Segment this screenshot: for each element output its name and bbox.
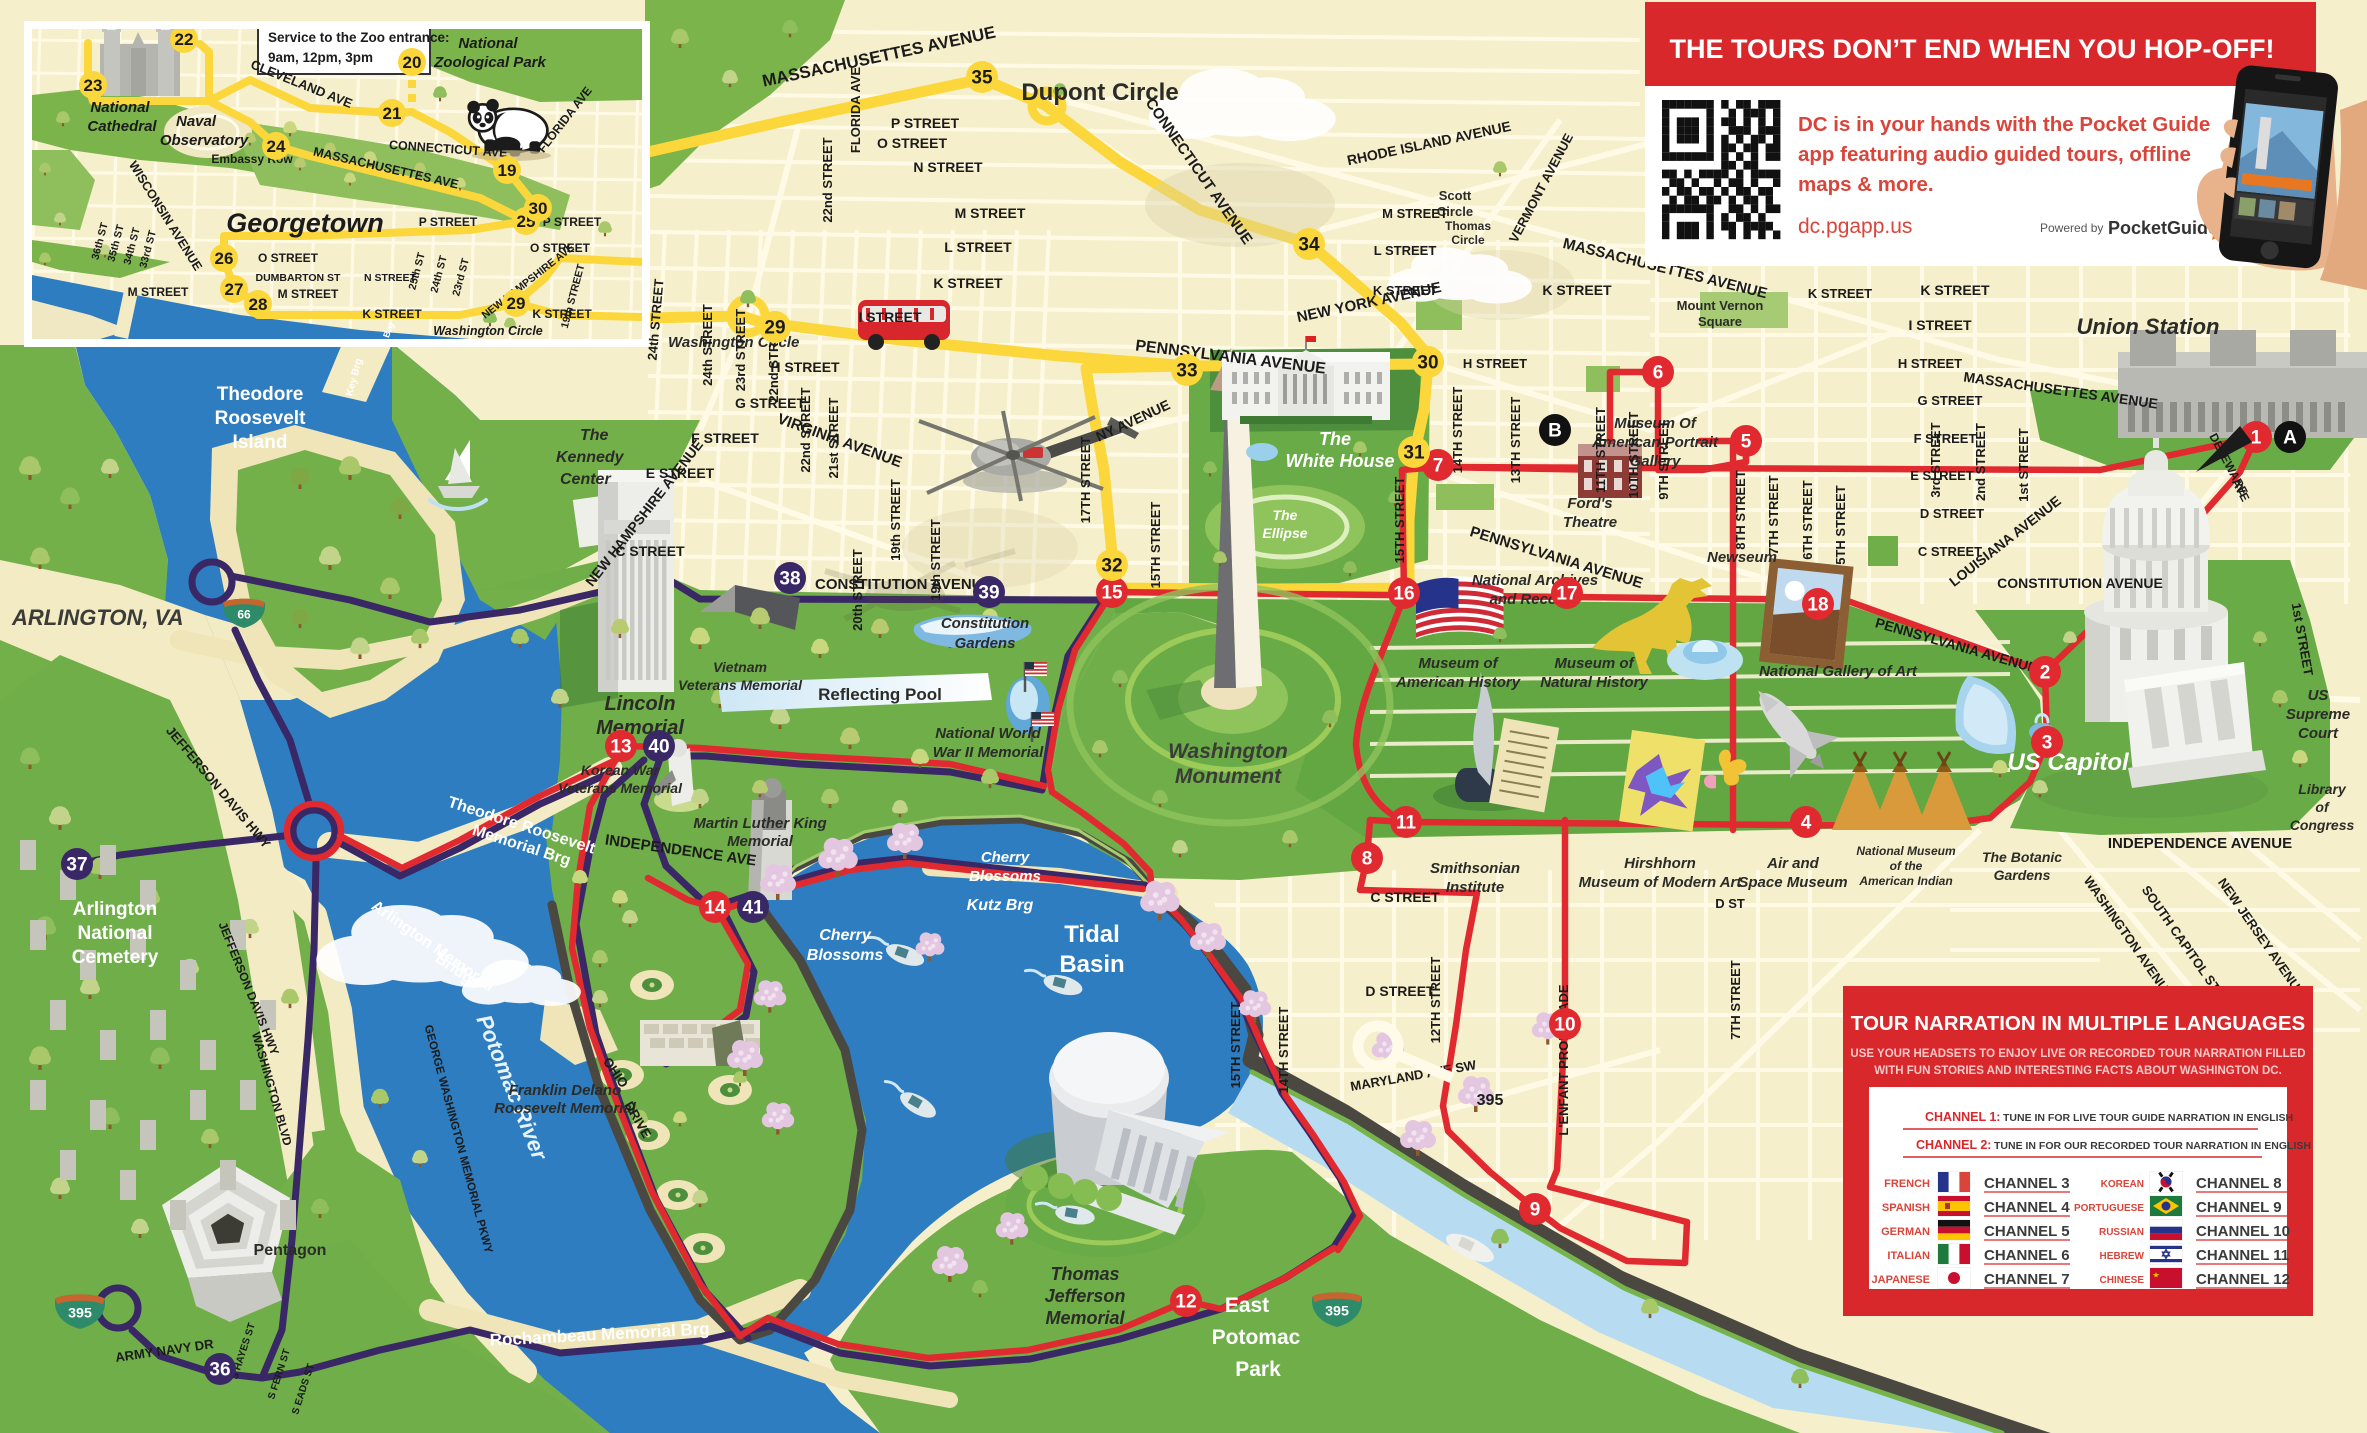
svg-text:CHINESE: CHINESE	[2100, 1275, 2145, 1286]
svg-text:26: 26	[215, 249, 234, 268]
svg-text:14: 14	[704, 898, 726, 919]
svg-text:Blossoms: Blossoms	[807, 947, 884, 964]
svg-text:Ford's: Ford's	[1567, 495, 1612, 512]
svg-text:Potomac: Potomac	[1212, 1326, 1301, 1349]
svg-text:L STREET: L STREET	[944, 239, 1012, 255]
svg-text:21st STREET: 21st STREET	[826, 397, 841, 478]
svg-text:Mount Vernon: Mount Vernon	[1677, 298, 1764, 313]
svg-text:34: 34	[1298, 235, 1320, 256]
svg-text:Court: Court	[2298, 725, 2339, 742]
svg-text:7: 7	[1433, 456, 1444, 477]
svg-text:East: East	[1225, 1294, 1269, 1317]
svg-text:Washington Circle: Washington Circle	[433, 324, 543, 338]
svg-text:29: 29	[507, 294, 526, 313]
svg-text:2nd STREET: 2nd STREET	[1973, 423, 1988, 501]
svg-text:Smithsonian: Smithsonian	[1430, 860, 1520, 877]
svg-text:F STREET: F STREET	[691, 430, 759, 446]
svg-text:Lincoln: Lincoln	[604, 693, 675, 715]
svg-text:Island: Island	[233, 432, 288, 453]
svg-text:30: 30	[1417, 353, 1438, 374]
svg-text:7TH STREET: 7TH STREET	[1728, 960, 1743, 1040]
svg-text:DC is in your hands with the P: DC is in your hands with the Pocket Guid…	[1798, 113, 2210, 136]
svg-text:CHANNEL 10: CHANNEL 10	[2196, 1223, 2290, 1240]
svg-text:National: National	[90, 99, 150, 116]
svg-text:36: 36	[209, 1360, 230, 1381]
svg-text:21: 21	[383, 104, 402, 123]
svg-text:20th STREET: 20th STREET	[850, 549, 865, 631]
svg-text:6: 6	[1653, 363, 1664, 384]
svg-text:15TH STREET: 15TH STREET	[1228, 1002, 1243, 1089]
svg-text:Thomas: Thomas	[1050, 1264, 1119, 1284]
svg-text:C STREET: C STREET	[615, 543, 685, 559]
svg-text:13: 13	[610, 737, 631, 758]
svg-text:CHANNEL 7: CHANNEL 7	[1984, 1271, 2070, 1288]
svg-text:40: 40	[648, 737, 669, 758]
svg-text:I STREET: I STREET	[1908, 317, 1971, 333]
svg-text:American History: American History	[1395, 674, 1521, 691]
svg-text:15: 15	[1101, 583, 1123, 604]
svg-text:18: 18	[1807, 595, 1828, 616]
svg-text:Memorial: Memorial	[1045, 1308, 1125, 1328]
svg-text:3: 3	[2042, 733, 2053, 754]
svg-text:Veterans Memorial: Veterans Memorial	[678, 677, 803, 693]
svg-text:10TH STREET: 10TH STREET	[1626, 412, 1641, 499]
svg-text:6TH STREET: 6TH STREET	[1800, 480, 1815, 560]
svg-text:19: 19	[498, 161, 517, 180]
svg-text:H STREET: H STREET	[1898, 356, 1962, 371]
svg-text:3rd STREET: 3rd STREET	[1928, 422, 1943, 497]
svg-text:Pentagon: Pentagon	[254, 1242, 327, 1259]
svg-text:Franklin Delano: Franklin Delano	[509, 1082, 622, 1099]
svg-text:Gardens: Gardens	[1994, 867, 2051, 883]
svg-text:CONSTITUTION AVENUE: CONSTITUTION AVENUE	[815, 576, 993, 593]
svg-text:L STREET: L STREET	[1374, 243, 1437, 258]
svg-text:TUNE IN FOR OUR RECORDED TOUR: TUNE IN FOR OUR RECORDED TOUR NARRATION …	[1994, 1140, 2311, 1152]
svg-text:17TH STREET: 17TH STREET	[1078, 437, 1093, 524]
svg-text:K STREET: K STREET	[1808, 286, 1872, 301]
svg-text:Monument: Monument	[1175, 765, 1282, 788]
svg-text:RUSSIAN: RUSSIAN	[2099, 1227, 2144, 1238]
svg-text:Washington: Washington	[1168, 740, 1288, 763]
svg-text:Museum of: Museum of	[1554, 655, 1635, 672]
svg-text:10: 10	[1554, 1015, 1575, 1036]
svg-text:Center: Center	[560, 471, 611, 488]
svg-text:Blossoms: Blossoms	[969, 868, 1041, 885]
svg-text:Observatory: Observatory	[160, 132, 249, 149]
svg-text:41: 41	[742, 898, 764, 919]
svg-text:20: 20	[403, 53, 422, 72]
svg-text:33: 33	[1176, 361, 1197, 382]
svg-text:National World: National World	[935, 725, 1041, 742]
svg-text:F STREET: F STREET	[1914, 431, 1977, 446]
svg-text:19th STREET: 19th STREET	[928, 519, 943, 601]
svg-text:Jefferson: Jefferson	[1045, 1286, 1126, 1306]
svg-text:P STREET: P STREET	[891, 115, 960, 131]
svg-text:O STREET: O STREET	[877, 135, 947, 151]
svg-text:E STREET: E STREET	[646, 465, 715, 481]
svg-text:29: 29	[764, 318, 785, 339]
svg-text:National Gallery of Art: National Gallery of Art	[1759, 663, 1918, 680]
svg-text:16: 16	[1393, 584, 1414, 605]
svg-text:National Museum: National Museum	[1856, 844, 1956, 858]
svg-text:app featuring audio guided tou: app featuring audio guided tours, offlin…	[1798, 143, 2191, 166]
svg-text:12TH STREET: 12TH STREET	[1428, 957, 1443, 1044]
svg-text:12: 12	[1175, 1292, 1196, 1313]
svg-text:I STREET: I STREET	[858, 309, 921, 325]
svg-text:395: 395	[1477, 1092, 1504, 1109]
svg-text:dc.pgapp.us: dc.pgapp.us	[1798, 215, 1912, 238]
svg-text:D STREET: D STREET	[1365, 983, 1435, 999]
svg-text:Roosevelt Memorial: Roosevelt Memorial	[494, 1100, 637, 1117]
svg-text:Basin: Basin	[1059, 951, 1124, 978]
svg-text:American Portrait: American Portrait	[1591, 434, 1719, 451]
svg-text:A: A	[2283, 428, 2297, 449]
svg-text:23rd STREET: 23rd STREET	[733, 309, 748, 391]
svg-text:CHANNEL 2:: CHANNEL 2:	[1916, 1138, 1991, 1152]
svg-text:H STREET: H STREET	[1463, 356, 1527, 371]
svg-text:JAPANESE: JAPANESE	[1872, 1274, 1930, 1286]
svg-text:War II Memorial: War II Memorial	[933, 744, 1044, 761]
svg-text:Supreme: Supreme	[2286, 706, 2350, 723]
svg-text:THE TOURS DON’T END WHEN YOU H: THE TOURS DON’T END WHEN YOU HOP-OFF!	[1669, 34, 2274, 64]
svg-text:White House: White House	[1285, 451, 1394, 471]
svg-text:Service to the Zoo entrance:: Service to the Zoo entrance:	[268, 30, 450, 45]
svg-text:Cemetery: Cemetery	[72, 947, 159, 968]
svg-text:15TH STREET: 15TH STREET	[1148, 502, 1163, 589]
svg-text:CHANNEL 5: CHANNEL 5	[1984, 1223, 2070, 1240]
svg-text:CHANNEL 8: CHANNEL 8	[2196, 1175, 2282, 1192]
svg-text:32: 32	[1101, 556, 1122, 577]
svg-text:Ellipse: Ellipse	[1262, 525, 1307, 541]
svg-text:22nd STREET: 22nd STREET	[798, 387, 813, 472]
svg-text:USE YOUR HEADSETS TO ENJOY LIV: USE YOUR HEADSETS TO ENJOY LIVE OR RECOR…	[1850, 1048, 2305, 1060]
svg-text:35: 35	[971, 68, 993, 89]
svg-text:Cherry: Cherry	[981, 849, 1030, 866]
svg-text:4: 4	[1801, 813, 1812, 834]
svg-text:Roosevelt: Roosevelt	[215, 408, 306, 429]
svg-text:D ST: D ST	[1715, 896, 1745, 911]
svg-text:CHANNEL 3: CHANNEL 3	[1984, 1175, 2070, 1192]
svg-text:DUMBARTON ST: DUMBARTON ST	[256, 272, 342, 284]
svg-text:9: 9	[1530, 1200, 1541, 1221]
svg-text:SPANISH: SPANISH	[1882, 1202, 1930, 1214]
svg-text:C STREET: C STREET	[1918, 544, 1982, 559]
svg-text:Tidal: Tidal	[1064, 921, 1120, 948]
svg-text:Museum of: Museum of	[1418, 655, 1499, 672]
svg-text:Space Museum: Space Museum	[1738, 874, 1847, 891]
svg-text:Georgetown: Georgetown	[226, 208, 384, 238]
svg-text:Institute: Institute	[1446, 879, 1504, 896]
svg-text:11TH STREET: 11TH STREET	[1593, 407, 1608, 493]
svg-text:2: 2	[2040, 663, 2051, 684]
svg-text:KOREAN: KOREAN	[2101, 1179, 2144, 1190]
svg-text:Powered by: Powered by	[2040, 221, 2103, 235]
svg-text:13TH STREET: 13TH STREET	[1508, 397, 1523, 484]
svg-text:Congress: Congress	[2290, 817, 2355, 833]
svg-text:24th STREET: 24th STREET	[700, 304, 715, 386]
svg-text:ITALIAN: ITALIAN	[1887, 1250, 1930, 1262]
svg-text:B: B	[1548, 421, 1562, 442]
svg-text:Gardens: Gardens	[955, 635, 1016, 652]
svg-text:ARLINGTON, VA: ARLINGTON, VA	[11, 605, 184, 630]
svg-text:8TH STREET: 8TH STREET	[1733, 470, 1748, 550]
svg-text:28: 28	[249, 295, 268, 314]
svg-text:38: 38	[779, 569, 800, 590]
svg-text:Arlington: Arlington	[73, 899, 157, 920]
svg-text:HEBREW: HEBREW	[2100, 1251, 2145, 1262]
svg-text:GERMAN: GERMAN	[1881, 1226, 1930, 1238]
svg-text:24: 24	[267, 137, 286, 156]
svg-text:39: 39	[978, 583, 999, 604]
svg-text:Thomas: Thomas	[1445, 219, 1491, 233]
svg-text:CHANNEL 4: CHANNEL 4	[1984, 1199, 2070, 1216]
svg-text:FRENCH: FRENCH	[1884, 1178, 1930, 1190]
svg-text:5TH STREET: 5TH STREET	[1833, 485, 1848, 565]
svg-text:395: 395	[1325, 1304, 1349, 1320]
svg-text:Korean War: Korean War	[581, 762, 661, 778]
svg-text:K STREET: K STREET	[362, 307, 422, 321]
svg-text:5: 5	[1741, 432, 1752, 453]
svg-text:M STREET: M STREET	[128, 285, 189, 299]
svg-text:8: 8	[1362, 849, 1373, 870]
svg-text:Natural History: Natural History	[1540, 674, 1648, 691]
svg-text:9TH STREET: 9TH STREET	[1656, 420, 1671, 500]
svg-text:Circle: Circle	[1451, 233, 1485, 247]
svg-text:of: of	[2315, 799, 2330, 815]
svg-text:Hirshhorn: Hirshhorn	[1624, 855, 1696, 872]
svg-text:30: 30	[529, 199, 548, 218]
svg-text:19th STREET: 19th STREET	[888, 479, 903, 561]
svg-text:National: National	[458, 35, 518, 52]
svg-text:22nd STREET: 22nd STREET	[820, 137, 835, 222]
svg-text:K STREET: K STREET	[1542, 282, 1612, 298]
svg-text:D STREET: D STREET	[1920, 506, 1984, 521]
svg-text:Kutz Brg: Kutz Brg	[967, 897, 1034, 914]
svg-text:P STREET: P STREET	[419, 215, 478, 229]
svg-text:CHANNEL 1:: CHANNEL 1:	[1925, 1110, 2000, 1124]
svg-text:FLORIDA AVE: FLORIDA AVE	[848, 67, 863, 154]
svg-text:Theodore: Theodore	[217, 384, 304, 405]
svg-text:maps & more.: maps & more.	[1798, 173, 1934, 196]
svg-text:22: 22	[175, 30, 194, 49]
svg-text:9am, 12pm, 3pm: 9am, 12pm, 3pm	[268, 50, 373, 65]
svg-text:Memorial: Memorial	[727, 833, 794, 850]
svg-text:of the: of the	[1890, 859, 1923, 873]
svg-text:66: 66	[237, 607, 251, 621]
svg-text:Air and: Air and	[1766, 855, 1820, 872]
svg-text:1: 1	[2251, 428, 2262, 449]
svg-text:The: The	[1273, 507, 1298, 523]
svg-text:US Capitol: US Capitol	[2007, 749, 2130, 776]
svg-text:Cathedral: Cathedral	[87, 118, 157, 135]
svg-text:C STREET: C STREET	[1370, 889, 1440, 905]
svg-text:Constitution: Constitution	[941, 615, 1029, 632]
svg-text:K STREET: K STREET	[1373, 283, 1437, 298]
svg-text:PocketGuide: PocketGuide	[2108, 218, 2218, 238]
svg-text:K STREET: K STREET	[1920, 282, 1990, 298]
svg-text:15TH STREET: 15TH STREET	[1392, 477, 1407, 564]
svg-text:7TH STREET: 7TH STREET	[1766, 475, 1781, 555]
svg-text:23: 23	[84, 76, 103, 95]
svg-text:TOUR NARRATION IN MULTIPLE LAN: TOUR NARRATION IN MULTIPLE LANGUAGES	[1851, 1012, 2305, 1035]
svg-text:The: The	[1319, 429, 1351, 449]
svg-text:M STREET: M STREET	[955, 205, 1026, 221]
svg-text:Cherry: Cherry	[819, 927, 872, 944]
svg-text:CHANNEL 6: CHANNEL 6	[1984, 1247, 2070, 1264]
svg-text:395: 395	[68, 1306, 92, 1322]
svg-text:Library: Library	[2298, 781, 2347, 797]
svg-text:CHANNEL 11: CHANNEL 11	[2196, 1247, 2289, 1264]
svg-text:CHANNEL 12: CHANNEL 12	[2196, 1271, 2290, 1288]
svg-text:Kennedy: Kennedy	[556, 449, 625, 466]
svg-text:The: The	[580, 427, 609, 444]
svg-text:Park: Park	[1235, 1358, 1281, 1381]
svg-text:Vietnam: Vietnam	[713, 659, 767, 675]
svg-text:37: 37	[66, 855, 87, 876]
svg-text:Martin Luther King: Martin Luther King	[693, 815, 826, 832]
svg-text:P STREET: P STREET	[543, 215, 602, 229]
svg-text:US: US	[2308, 687, 2329, 704]
svg-text:CHANNEL 9: CHANNEL 9	[2196, 1199, 2282, 1216]
svg-text:Scott: Scott	[1439, 188, 1472, 203]
svg-text:14TH STREET: 14TH STREET	[1276, 1007, 1291, 1094]
svg-text:L'ENFANT PROMENADE: L'ENFANT PROMENADE	[1556, 984, 1571, 1135]
svg-text:Museum of Modern Art: Museum of Modern Art	[1579, 874, 1743, 891]
svg-text:K STREET: K STREET	[933, 275, 1003, 291]
svg-text:M STREET: M STREET	[278, 287, 339, 301]
svg-text:Naval: Naval	[176, 113, 217, 130]
svg-text:TUNE IN FOR LIVE TOUR GUIDE NA: TUNE IN FOR LIVE TOUR GUIDE NARRATION IN…	[2003, 1112, 2293, 1124]
svg-text:Theatre: Theatre	[1563, 514, 1617, 531]
svg-text:CONSTITUTION AVENUE: CONSTITUTION AVENUE	[1997, 575, 2163, 591]
svg-text:G STREET: G STREET	[1917, 393, 1982, 408]
svg-text:11: 11	[1396, 813, 1417, 834]
svg-text:Union Station: Union Station	[2077, 314, 2220, 339]
svg-text:M STREET: M STREET	[1382, 206, 1448, 221]
svg-text:American Indian: American Indian	[1858, 874, 1952, 888]
svg-text:The Botanic: The Botanic	[1982, 849, 2062, 865]
svg-text:Veterans Memorial: Veterans Memorial	[558, 780, 683, 796]
svg-text:WITH FUN STORIES AND INTERESTI: WITH FUN STORIES AND INTERESTING FACTS A…	[1874, 1065, 2282, 1077]
svg-text:PORTUGUESE: PORTUGUESE	[2074, 1203, 2144, 1214]
svg-text:31: 31	[1403, 443, 1425, 464]
svg-text:27: 27	[225, 280, 244, 299]
svg-text:N STREET: N STREET	[913, 159, 983, 175]
svg-text:INDEPENDENCE AVENUE: INDEPENDENCE AVENUE	[2108, 835, 2292, 852]
svg-text:Reflecting Pool: Reflecting Pool	[818, 685, 942, 704]
svg-text:17: 17	[1556, 584, 1577, 605]
svg-text:National: National	[78, 923, 153, 944]
svg-text:1st STREET: 1st STREET	[2016, 428, 2031, 502]
svg-text:Square: Square	[1698, 314, 1742, 329]
svg-text:O STREET: O STREET	[258, 251, 319, 265]
svg-text:Zoological Park: Zoological Park	[433, 54, 546, 71]
